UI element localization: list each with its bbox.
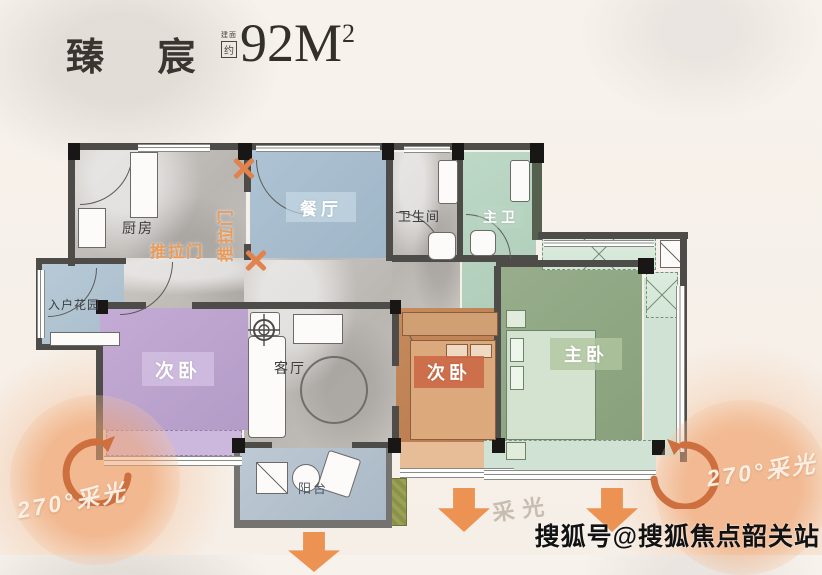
column bbox=[530, 143, 544, 163]
area-note-line2: 约 bbox=[221, 41, 237, 58]
column bbox=[232, 438, 245, 453]
window-closet-top bbox=[544, 240, 654, 247]
label-kitchen: 厨房 bbox=[122, 218, 154, 238]
sliding-door-label-vertical: 推拉门 bbox=[212, 208, 236, 262]
window-kitchen-top bbox=[138, 144, 210, 152]
area-superscript: 2 bbox=[342, 19, 355, 48]
label-master-bath: 主卫 bbox=[478, 206, 524, 228]
window-master-bay-bottom bbox=[484, 470, 656, 480]
wall-master-top bbox=[496, 260, 646, 267]
wall-dining-bath bbox=[386, 143, 393, 261]
nightstand bbox=[506, 310, 526, 328]
label-living: 客厅 bbox=[274, 358, 306, 378]
wall-balcony-right bbox=[386, 448, 392, 528]
watermark-text: 搜狐号@搜狐焦点韶关站 bbox=[535, 517, 820, 553]
fridge bbox=[78, 208, 106, 248]
column bbox=[452, 143, 464, 160]
column bbox=[388, 438, 401, 453]
area-number: 92M bbox=[240, 13, 342, 73]
round-rug bbox=[300, 356, 368, 424]
kitchen-counter bbox=[130, 152, 158, 218]
tv-cabinet bbox=[293, 314, 343, 344]
wall-balcony-bottom bbox=[234, 520, 392, 528]
label-master-bedroom: 主卧 bbox=[550, 338, 622, 370]
area-note-line1: 建面 bbox=[219, 30, 239, 40]
compass-marker-icon bbox=[248, 314, 280, 346]
window-dining-top bbox=[256, 145, 380, 152]
sliding-door-x-bottom-icon bbox=[244, 248, 268, 272]
toilet-bathroom bbox=[428, 232, 456, 260]
window-garden-left bbox=[37, 270, 45, 338]
nightstand bbox=[506, 442, 526, 460]
vanity-bathroom bbox=[438, 160, 458, 204]
column bbox=[638, 258, 654, 274]
shaft-box bbox=[646, 272, 678, 318]
wall-topright bbox=[538, 232, 688, 239]
column bbox=[492, 438, 505, 453]
wall-corridor-b bbox=[192, 302, 396, 309]
toilet-master-bath bbox=[470, 230, 496, 256]
label-bedroom-left: 次卧 bbox=[142, 352, 214, 386]
column bbox=[390, 300, 401, 314]
wall-bath-masterbath bbox=[457, 143, 463, 261]
balcony-square-table bbox=[256, 462, 288, 494]
pillow bbox=[510, 338, 524, 362]
closet-bedroom-mid bbox=[402, 312, 498, 336]
area-note: 建面 约 bbox=[219, 30, 239, 59]
area-value: 92M2 bbox=[240, 12, 355, 74]
label-bedroom-mid: 次卧 bbox=[414, 356, 484, 388]
column bbox=[382, 143, 394, 160]
daylight-arrow-icon bbox=[438, 488, 490, 532]
wall-kitchen-left bbox=[68, 143, 75, 266]
wall-living-mid-a bbox=[392, 308, 399, 366]
label-bathroom: 卫生间 bbox=[398, 206, 440, 225]
column bbox=[68, 143, 80, 160]
vanity-master-bath bbox=[510, 160, 530, 202]
wall-garden-top bbox=[36, 258, 126, 264]
garden-bench bbox=[50, 332, 120, 346]
sliding-door-label: 推拉门 bbox=[150, 238, 204, 262]
daylight-arrow-icon bbox=[288, 532, 340, 572]
window-bath-top bbox=[404, 146, 450, 153]
sofa bbox=[248, 336, 286, 438]
label-entry-garden: 入户花园 bbox=[48, 296, 100, 313]
sliding-door-x-top-icon bbox=[232, 156, 256, 180]
label-balcony: 阳台 bbox=[298, 478, 328, 497]
label-dining: 餐厅 bbox=[286, 192, 356, 222]
plan-title: 臻 宸 bbox=[66, 26, 218, 81]
pillow bbox=[510, 366, 524, 390]
